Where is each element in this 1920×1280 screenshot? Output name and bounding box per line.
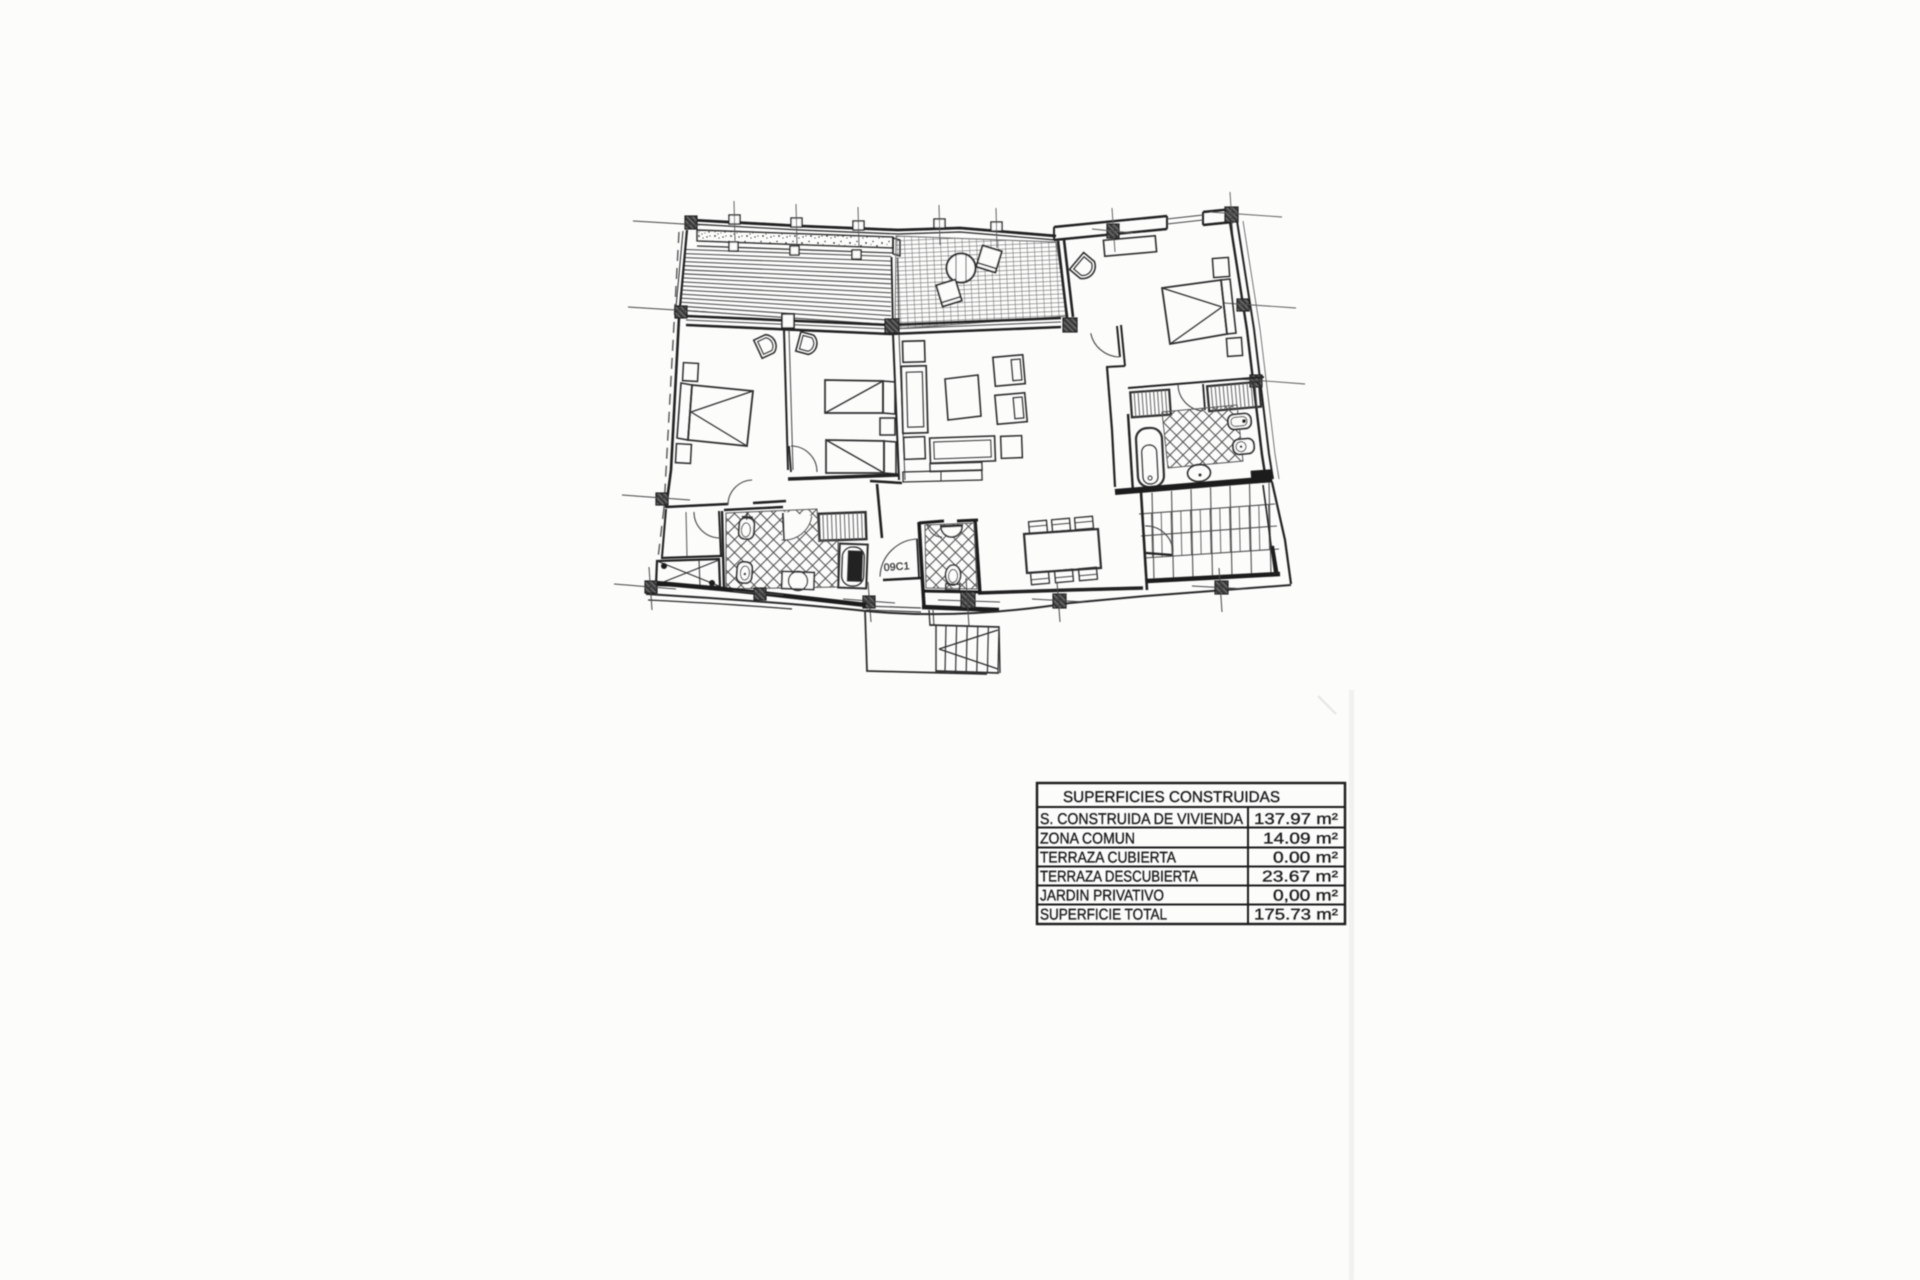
- svg-text:14.09 m²: 14.09 m²: [1263, 831, 1338, 848]
- svg-text:SUPERFICIE TOTAL: SUPERFICIE TOTAL: [1040, 907, 1167, 924]
- svg-text:0.00 m²: 0.00 m²: [1273, 850, 1338, 867]
- svg-text:09C1: 09C1: [883, 560, 910, 574]
- svg-text:ZONA COMUN: ZONA COMUN: [1040, 831, 1135, 848]
- svg-text:TERRAZA CUBIERTA: TERRAZA CUBIERTA: [1040, 850, 1177, 867]
- svg-text:0,00 m²: 0,00 m²: [1273, 888, 1338, 905]
- svg-text:137.97 m²: 137.97 m²: [1254, 811, 1338, 828]
- svg-text:175.73 m²: 175.73 m²: [1254, 907, 1338, 924]
- svg-text:JARDIN PRIVATIVO: JARDIN PRIVATIVO: [1040, 888, 1164, 905]
- svg-text:TERRAZA DESCUBIERTA: TERRAZA DESCUBIERTA: [1040, 869, 1199, 886]
- svg-text:S. CONSTRUIDA DE VIVIENDA: S. CONSTRUIDA DE VIVIENDA: [1040, 811, 1244, 828]
- svg-text:SUPERFICIES CONSTRUIDAS: SUPERFICIES CONSTRUIDAS: [1063, 789, 1280, 806]
- svg-text:23.67 m²: 23.67 m²: [1262, 869, 1338, 886]
